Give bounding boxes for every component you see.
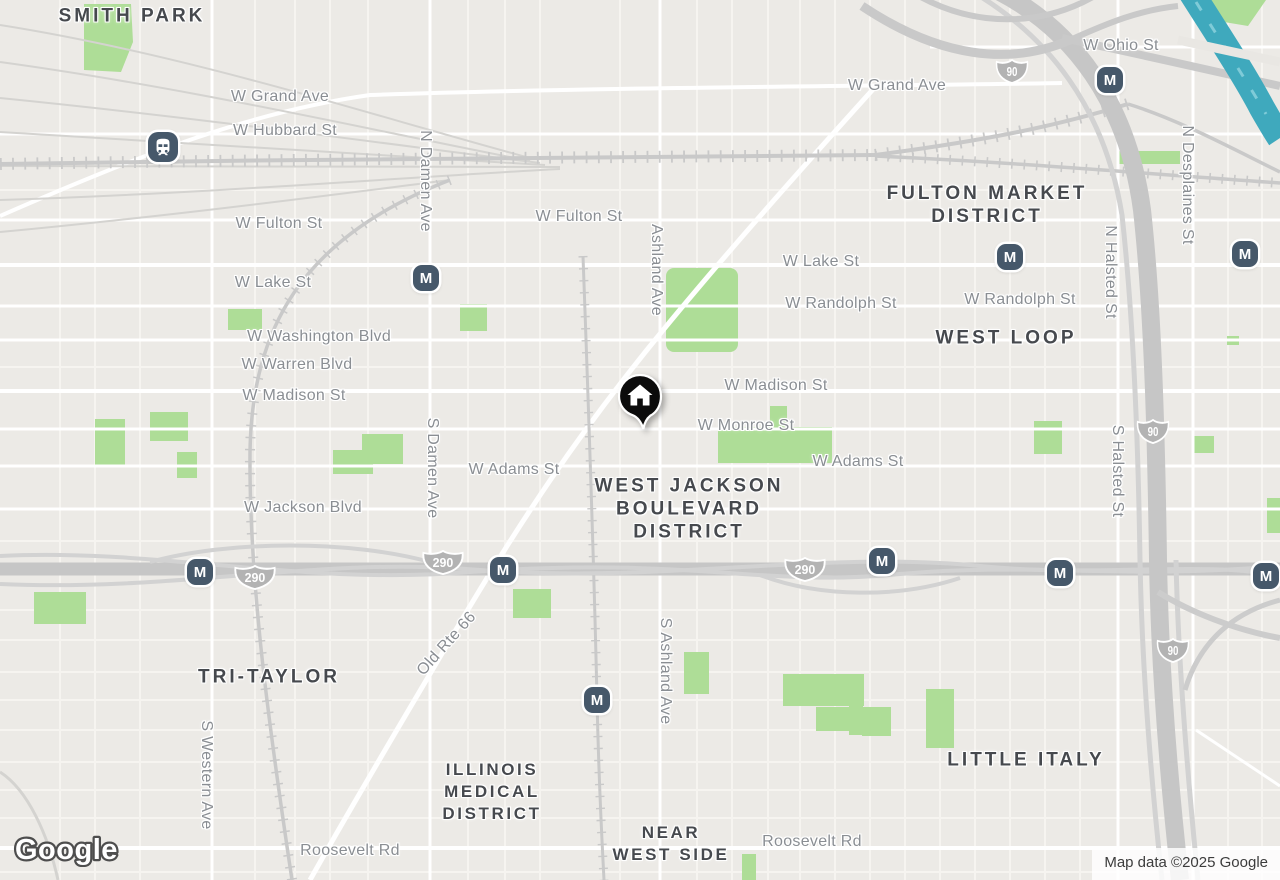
- map-canvas[interactable]: W Grand AveW Hubbard StW Fulton StW Lake…: [0, 0, 1280, 880]
- poi-layer: [0, 0, 1280, 880]
- home-location-pin[interactable]: [616, 373, 664, 436]
- google-logo-text: Google: [15, 834, 118, 866]
- map-attribution: Map data ©2025 Google: [1092, 848, 1280, 880]
- google-logo[interactable]: Google: [12, 831, 136, 872]
